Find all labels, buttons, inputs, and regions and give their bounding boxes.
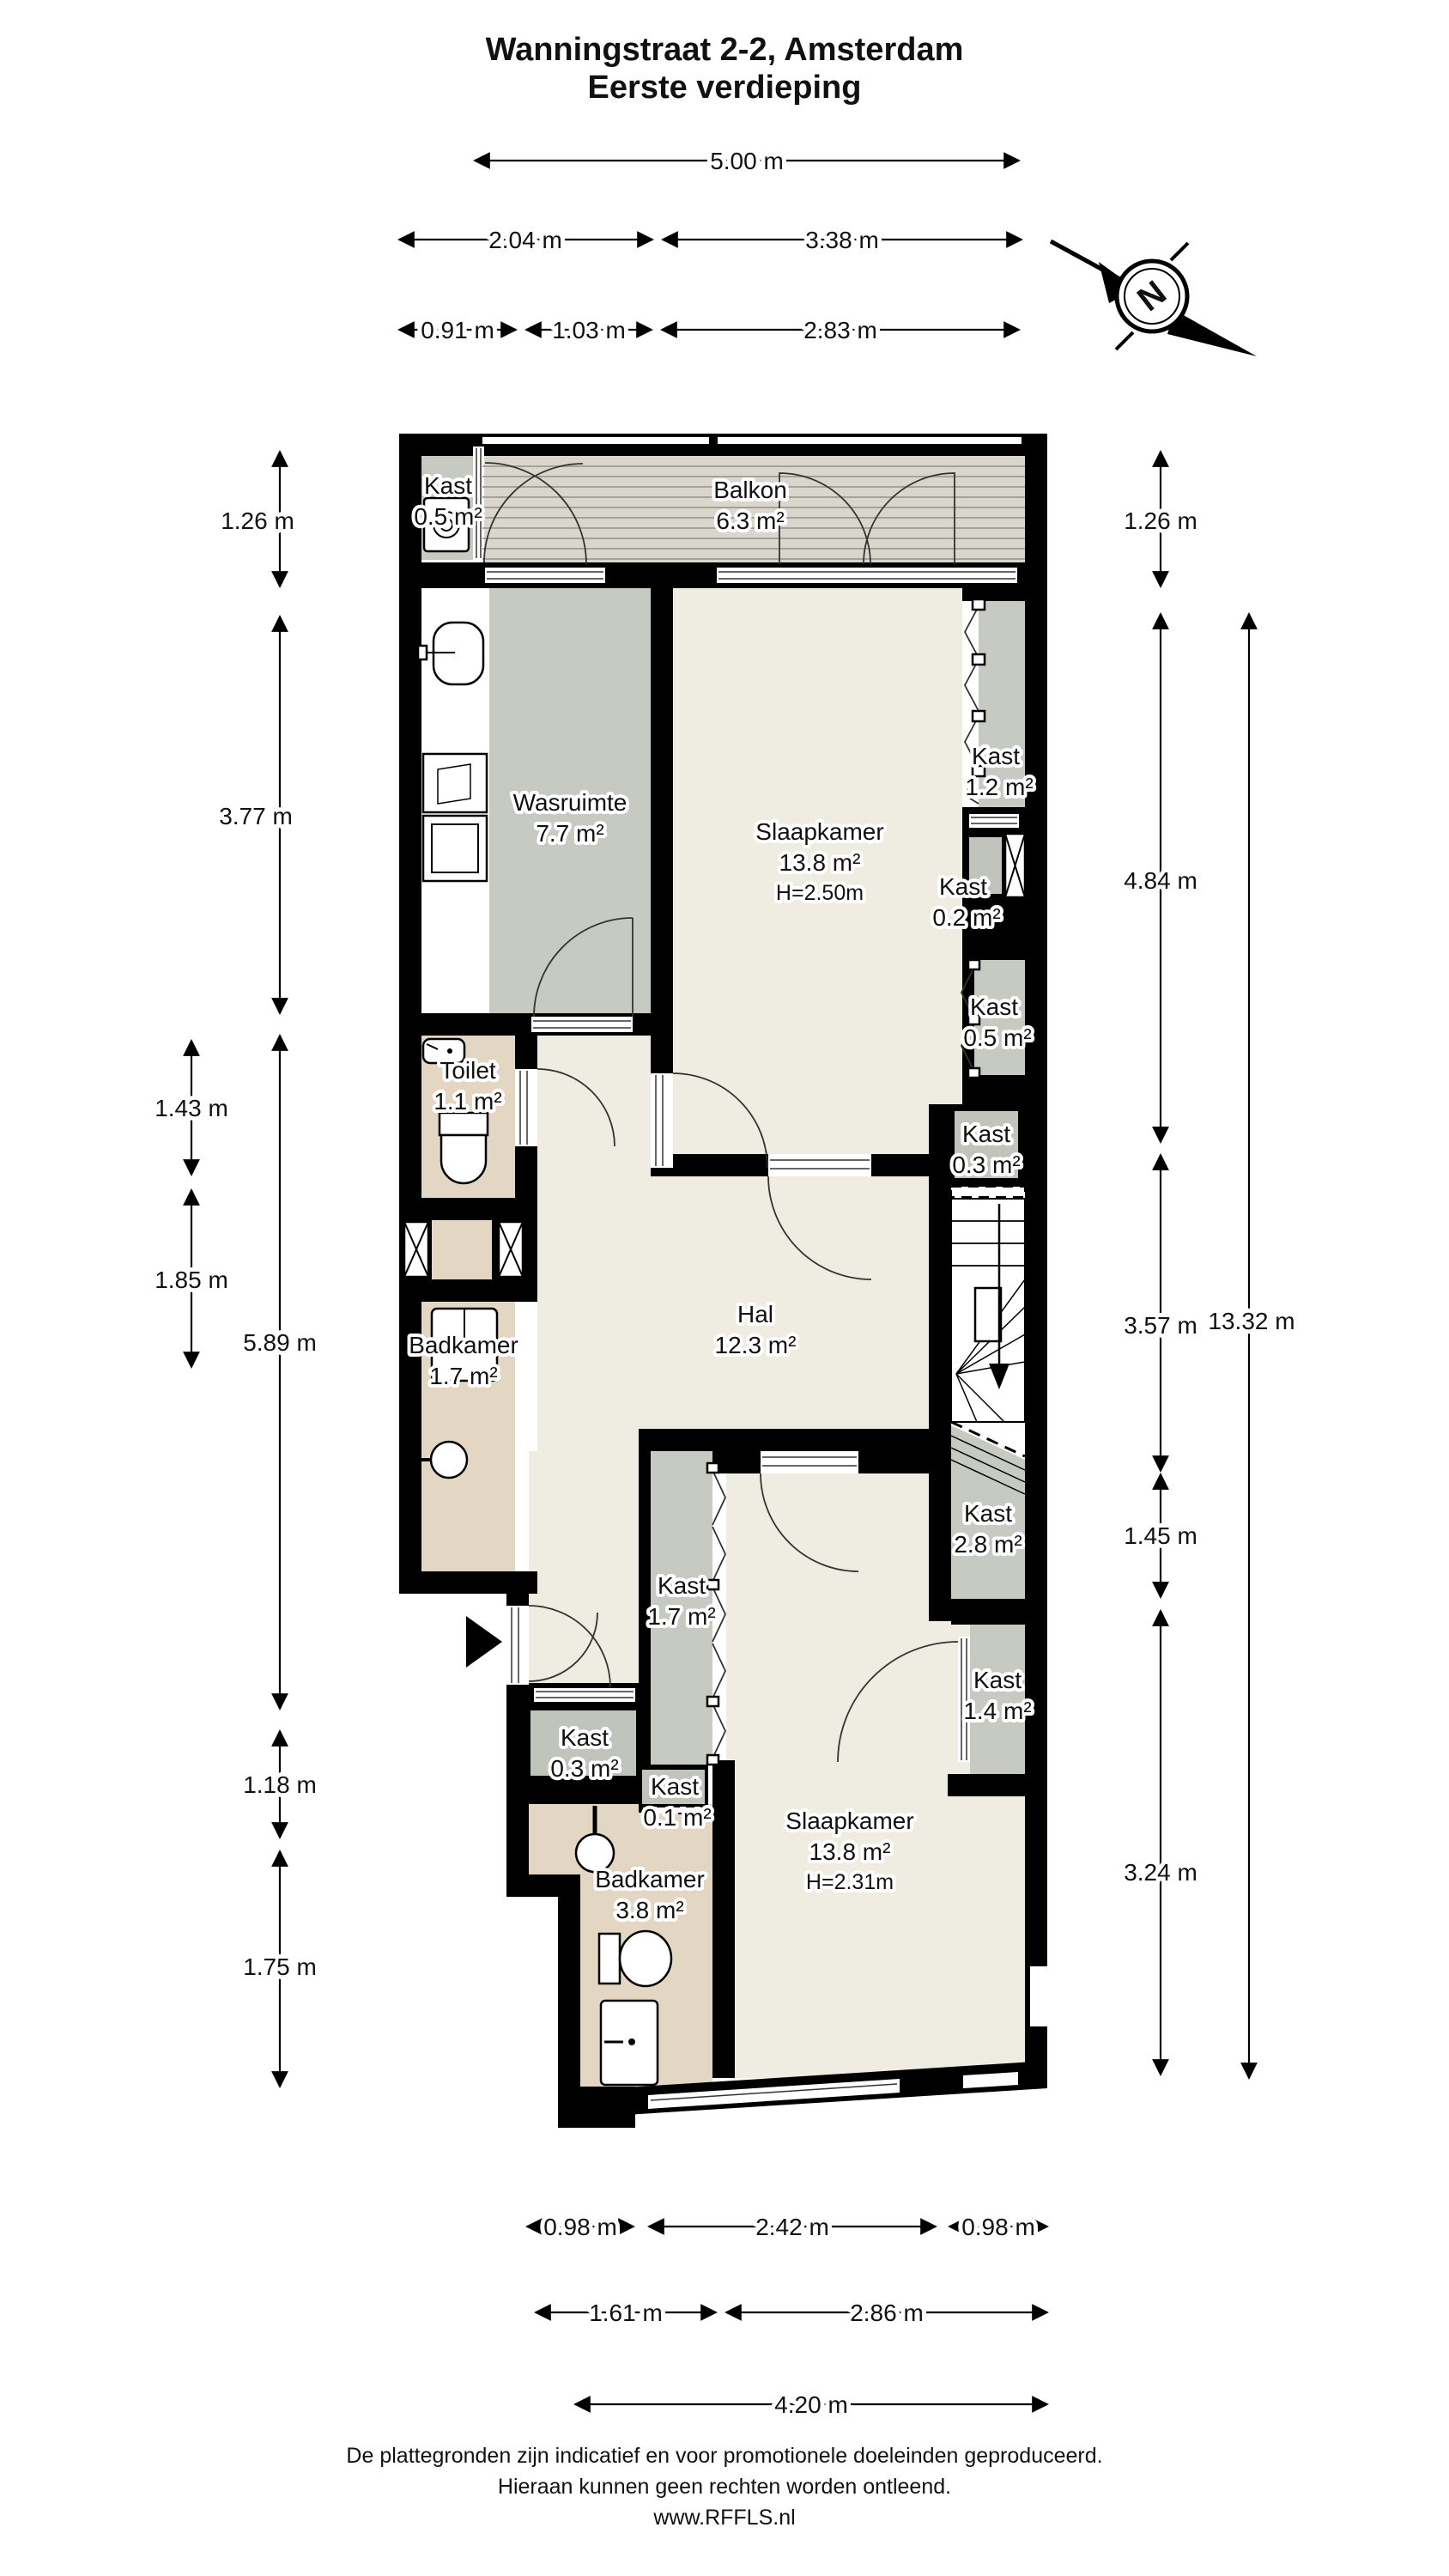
dim-top-500: 5.00 m [710,148,784,174]
disclaimer-website: www.RFFLS.nl [0,2502,1449,2533]
toilet-icon [440,1113,488,1183]
wall-right [1025,434,1047,2078]
dim-right-357: 3.57 m [1124,1312,1197,1339]
dim-bottom-098b: 0.98 m [961,2214,1035,2240]
room-hal-corridor-floor [529,1451,639,1709]
label-slaapkamer1-area: 13.8 m² [779,849,861,876]
wall-top [399,434,1047,456]
label-slaapkamer1-name: Slaapkamer [755,818,883,845]
label-kast02-name: Kast [939,873,987,900]
floorplan-svg: 5.00 m 2.04 m 3.38 m 0.91 m 1.03 m 2.83 … [0,0,1449,2576]
dim-right-126: 1.26 m [1124,507,1197,534]
wall-kast28-west [929,1422,951,1621]
disclaimer: De plattegronden zijn indicatief en voor… [0,2440,1449,2533]
disclaimer-line2: Hieraan kunnen geen rechten worden ontle… [0,2471,1449,2502]
label-kast17-name: Kast [658,1572,706,1599]
dim-top-283: 2.83 m [803,317,877,343]
label-kast03l-area: 0.3 m² [550,1755,618,1782]
floorplan-page: Wanningstraat 2-2, Amsterdam Eerste verd… [0,0,1449,2576]
window-balkon-left [485,568,605,583]
dim-right-324: 3.24 m [1124,1859,1197,1886]
balkon-railing-right [718,437,1022,444]
door-kast02 [969,814,1019,828]
label-kast-top-area: 0.5 m² [414,503,482,530]
wall-left-step [506,1874,580,1897]
dim-bottom-420: 4.20 m [774,2391,848,2418]
label-kast03r-area: 0.3 m² [952,1151,1020,1178]
label-slaapkamer2-area: 13.8 m² [809,1838,891,1865]
label-kast-top-name: Kast [424,472,472,499]
label-kast05r-area: 0.5 m² [963,1024,1031,1051]
dim-top-103: 1.03 m [552,317,626,343]
label-slaapkamer2-name: Slaapkamer [785,1807,913,1834]
door-slaapkamer2 [761,1451,858,1473]
dim-left-143: 1.43 m [155,1095,228,1121]
dim-left-377: 3.77 m [219,803,293,829]
label-badkamer-onder-name: Badkamer [595,1866,705,1893]
label-balkon-name: Balkon [713,477,787,503]
label-kast17-area: 1.7 m² [647,1603,715,1630]
stairs [951,1199,1025,1422]
label-hal-name: Hal [737,1301,773,1327]
label-balkon-area: 6.3 m² [716,507,784,534]
dim-left-118: 1.18 m [243,1771,317,1798]
balkon-railing-left [482,437,709,444]
wall-hal-south [639,1429,929,1451]
dim-top-338: 3.38 m [805,227,879,253]
dim-left-126: 1.26 m [221,507,294,534]
door-toilet [515,1069,537,1146]
wall-kast28-south [951,1599,1025,1625]
label-hal-area: 12.3 m² [715,1332,797,1358]
window-slaapkamer2-east [1030,1966,1047,2026]
label-badkamer-boven-area: 1.7 m² [429,1363,497,1389]
dim-bottom-161: 1.61 m [589,2300,663,2326]
door-kast03l [534,1688,635,1702]
door-hal-north [768,1154,871,1176]
dim-bottom-286: 2.86 m [850,2300,924,2326]
dim-right-1332: 13.32 m [1208,1308,1294,1334]
wall-badkamer-boven-south [399,1571,537,1594]
vanity-icon [601,2001,658,2085]
door-wasruimte [531,1017,633,1032]
door-entrance [506,1606,529,1685]
label-kast03r-name: Kast [962,1121,1010,1147]
dim-left-185: 1.85 m [155,1267,228,1293]
dim-top-204: 2.04 m [488,227,562,253]
label-kast28-area: 2.8 m² [954,1531,1022,1558]
dim-bottom-098a: 0.98 m [543,2214,617,2240]
washer-icon [423,754,487,812]
wall-stairs-west [929,1104,951,1422]
dryer-icon [423,816,487,881]
dim-top-091: 0.91 m [421,317,494,343]
label-kast14-name: Kast [973,1667,1022,1693]
toilet-onder-icon [599,1931,671,1986]
dim-left-589: 5.89 m [243,1329,317,1356]
label-kast12-area: 1.2 m² [965,774,1033,800]
dim-left-175: 1.75 m [243,1953,317,1980]
label-badkamer-onder-area: 3.8 m² [615,1897,683,1923]
wall-badkamer-onder-east [712,1760,735,2078]
label-kast02-area: 0.2 m² [932,904,1000,931]
label-wasruimte-name: Wasruimte [513,789,627,816]
label-toilet-name: Toilet [440,1057,496,1084]
entrance-arrow-icon [466,1616,502,1668]
window-balkon-right [717,568,1017,583]
dim-bottom-242: 2.42 m [755,2214,829,2240]
door-kast03r-dashed [951,1187,1025,1197]
door-slaapkamer1 [651,1073,673,1168]
wall-left-lower [558,1897,580,2119]
dim-right-484: 4.84 m [1124,867,1197,894]
label-kast14-area: 1.4 m² [963,1698,1031,1724]
compass-icon: N [1051,241,1257,356]
label-kast01-area: 0.1 m² [643,1804,711,1831]
dim-right-145: 1.45 m [1124,1522,1197,1549]
label-kast12-name: Kast [972,743,1020,769]
wall-left-upper [399,434,421,1594]
wall-wasruimte-slaapkamer [651,588,673,1036]
label-kast03l-name: Kast [561,1724,609,1751]
label-kast28-name: Kast [964,1500,1012,1527]
label-toilet-area: 1.1 m² [433,1088,501,1115]
wall-bottom-left-corner [558,2087,635,2128]
label-slaapkamer2-height: H=2.31m [806,1870,894,1894]
label-kast05r-name: Kast [970,993,1018,1020]
label-slaapkamer1-height: H=2.50m [776,881,864,905]
disclaimer-line1: De plattegronden zijn indicatief en voor… [0,2440,1449,2471]
label-kast01-name: Kast [651,1773,699,1800]
wall-kast14-south [948,1774,1025,1796]
label-badkamer-boven-name: Badkamer [409,1332,518,1358]
label-wasruimte-area: 7.7 m² [536,820,603,847]
shaft-hatch-left [404,1220,523,1279]
